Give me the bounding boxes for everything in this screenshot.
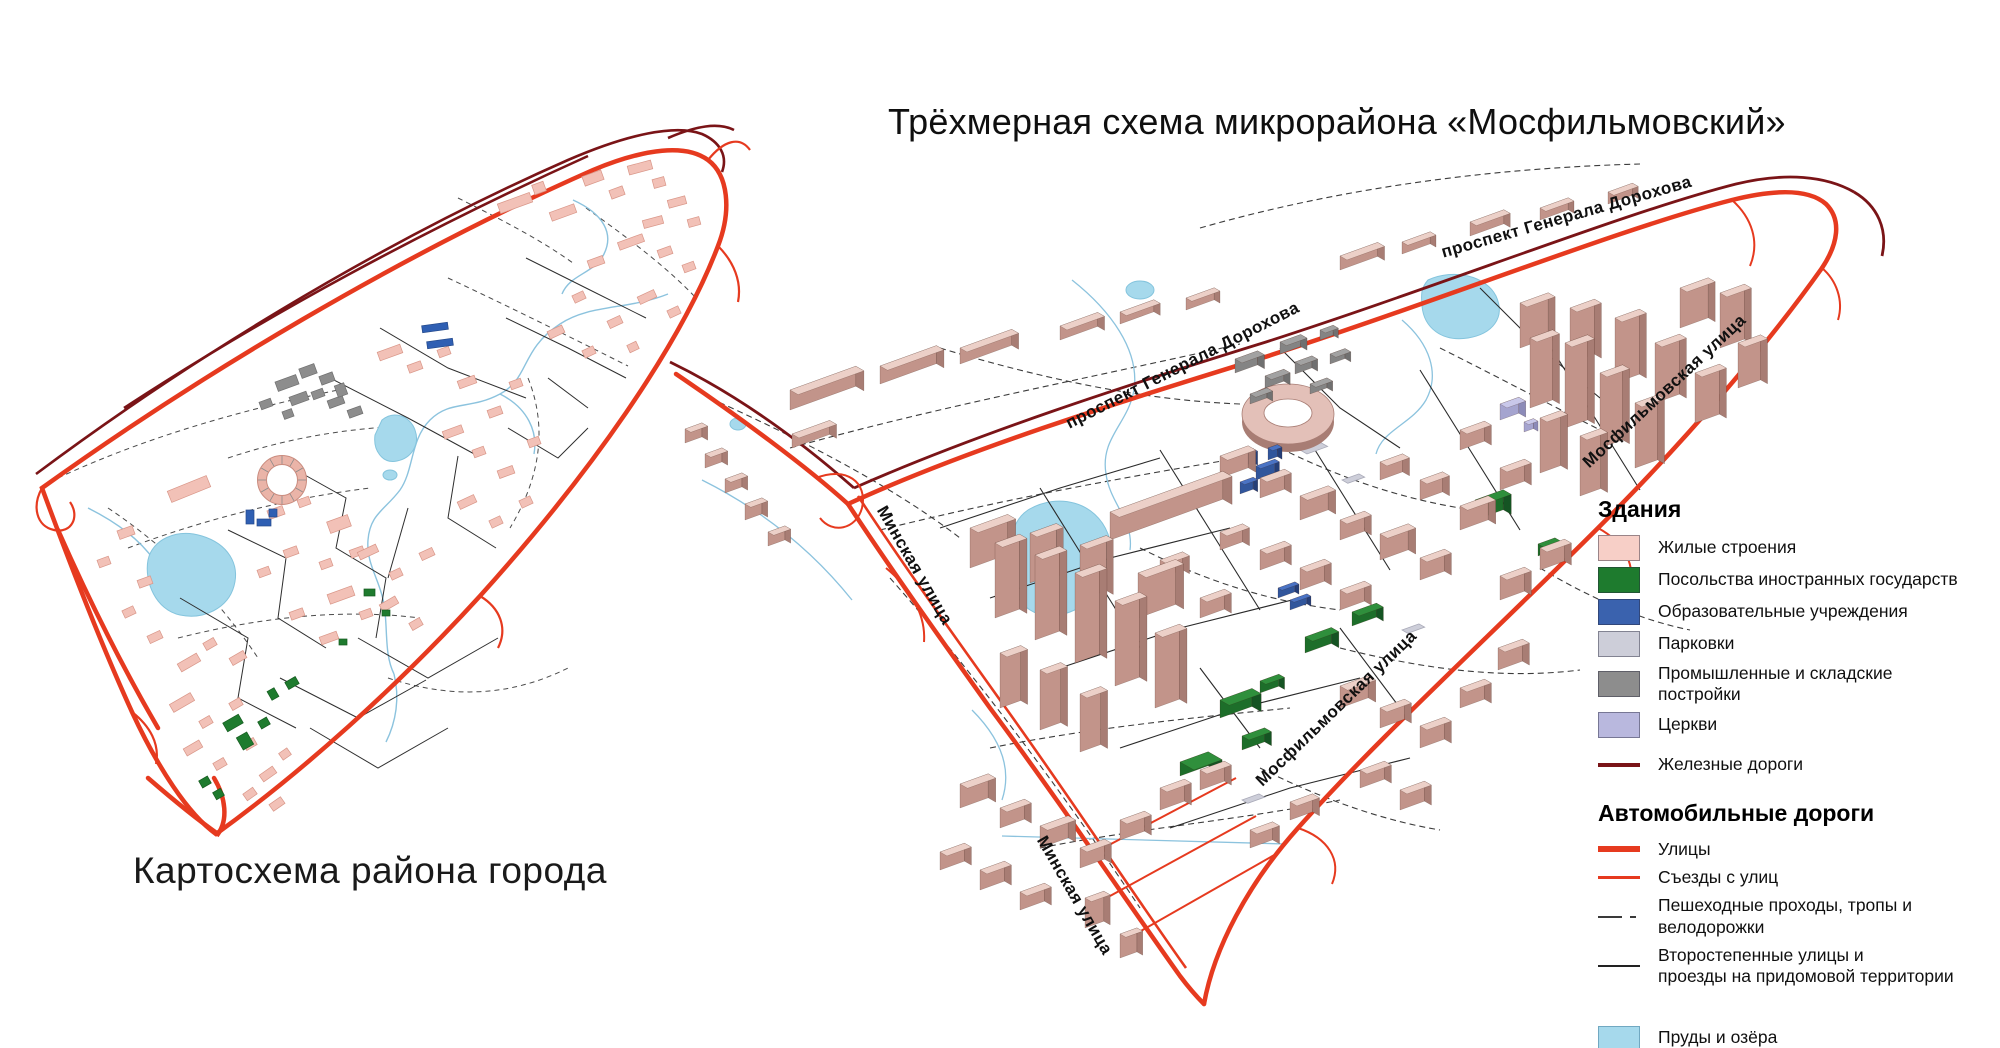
res-building-3d <box>1680 278 1715 328</box>
res-building-2d <box>289 608 305 620</box>
emb-building-2d <box>199 776 212 788</box>
res-building-2d <box>497 466 515 479</box>
res-building-2d <box>283 546 299 558</box>
res-building-3d <box>1000 799 1031 828</box>
legend-item-footpaths: Пешеходные проходы, тропы и велодорожки <box>1598 895 1978 938</box>
res-building-3d <box>1000 646 1028 708</box>
buildings-2d <box>97 160 701 811</box>
res-building-3d <box>1420 549 1451 580</box>
res-building-3d <box>1120 300 1160 324</box>
emb-building-3d <box>1260 674 1285 693</box>
streets-2d <box>42 150 726 834</box>
footpath-dash-swatch <box>1598 916 1640 918</box>
res-building-2d <box>243 787 257 800</box>
emb-building-2d <box>364 589 375 596</box>
parking-lot-3d <box>1242 794 1265 803</box>
res-building-2d <box>122 606 136 618</box>
emb-building-2d <box>223 714 244 732</box>
churches-swatch <box>1598 712 1640 738</box>
ind-building-2d <box>334 383 348 398</box>
legend-item-education: Образовательные учреждения <box>1598 599 1978 625</box>
res-building-3d <box>1565 335 1595 428</box>
residential-swatch <box>1598 535 1640 561</box>
edu-building-2d <box>269 509 277 517</box>
res-building-3d <box>1115 592 1147 686</box>
res-building-2d <box>549 204 577 221</box>
legend-buildings-header: Здания <box>1598 496 1978 523</box>
res-building-3d <box>1695 364 1726 423</box>
res-building-2d <box>487 406 503 418</box>
rivers-2d <box>88 200 668 742</box>
res-building-3d <box>705 448 728 468</box>
ind-building-3d <box>1235 351 1265 373</box>
ind-building-2d <box>282 409 294 420</box>
emb-building-3d <box>1352 603 1383 626</box>
ind-building-2d <box>319 372 335 385</box>
res-building-3d <box>940 843 971 870</box>
street-label: проспект Генерала Дорохова <box>1439 172 1694 262</box>
res-building-2d <box>199 716 213 729</box>
left-map-title: Картосхема района города <box>133 850 607 892</box>
res-building-3d <box>790 366 864 410</box>
res-building-2d <box>419 547 435 560</box>
ramp-line-swatch <box>1598 876 1640 879</box>
emb-building-2d <box>267 688 279 701</box>
res-building-3d <box>1220 524 1250 550</box>
res-building-2d <box>279 748 292 760</box>
res-building-3d <box>1380 524 1416 560</box>
res-building-2d <box>327 586 355 604</box>
res-building-3d <box>1040 663 1068 730</box>
res-building-3d <box>1420 717 1451 748</box>
res-building-2d <box>259 766 277 782</box>
res-building-3d <box>880 346 944 384</box>
res-building-3d <box>1035 546 1067 640</box>
res-building-2d <box>609 186 625 199</box>
ring-building-2d <box>258 456 307 505</box>
ind-building-2d <box>347 406 363 418</box>
res-building-2d <box>147 630 163 643</box>
res-building-2d <box>489 516 503 528</box>
chu-building-3d <box>1524 419 1538 432</box>
res-building-2d <box>572 291 586 303</box>
res-building-3d <box>1200 589 1231 618</box>
legend-item-secondary: Второстепенные улицы ипроезды на придомо… <box>1598 945 1978 988</box>
res-building-3d <box>1380 454 1410 480</box>
res-building-3d <box>1155 624 1187 708</box>
res-building-3d <box>1540 411 1568 473</box>
res-building-2d <box>319 558 333 570</box>
res-building-3d <box>1300 559 1331 590</box>
infographic-page: проспект Генерала Дороховапроспект Генер… <box>0 0 2000 1048</box>
res-building-2d <box>607 315 623 328</box>
res-building-3d <box>1340 242 1385 270</box>
res-building-2d <box>472 446 486 458</box>
emb-building-3d <box>1305 627 1339 653</box>
res-building-2d <box>457 495 477 510</box>
emb-building-2d <box>339 639 347 645</box>
ind-building-3d <box>1295 356 1318 374</box>
chu-building-3d <box>1500 397 1526 420</box>
res-building-3d <box>1530 330 1560 408</box>
emb-building-2d <box>382 610 390 616</box>
parking-lot-3d <box>1342 474 1365 483</box>
res-building-2d <box>587 256 605 269</box>
res-building-3d <box>1020 883 1051 910</box>
res-building-3d <box>960 329 1019 364</box>
legend-item-embassies: Посольства иностранных государств <box>1598 567 1978 593</box>
res-building-2d <box>327 515 352 534</box>
ind-building-3d <box>1310 378 1333 394</box>
ponds-swatch <box>1598 1026 1640 1048</box>
edu-building-2d <box>422 322 449 333</box>
res-building-3d <box>1300 486 1336 520</box>
ind-building-2d <box>289 391 309 406</box>
res-building-2d <box>97 556 111 568</box>
res-building-3d <box>1120 928 1143 958</box>
edu-building-3d <box>1290 594 1311 610</box>
res-building-3d <box>1402 232 1436 254</box>
legend-item-streets: Улицы <box>1598 839 1978 860</box>
res-building-3d <box>725 473 748 493</box>
edu-building-3d <box>1240 477 1258 494</box>
ind-building-2d <box>275 375 299 392</box>
res-building-3d <box>1340 511 1371 540</box>
res-building-3d <box>1420 472 1450 500</box>
edu-building-3d <box>1278 582 1299 598</box>
res-building-3d <box>1075 564 1107 663</box>
res-building-3d <box>1738 335 1768 388</box>
ind-building-2d <box>311 388 325 400</box>
res-building-3d <box>1460 421 1491 450</box>
res-building-2d <box>269 797 285 812</box>
res-building-2d <box>519 496 533 508</box>
res-building-2d <box>437 346 451 358</box>
res-building-2d <box>409 618 423 631</box>
res-building-2d <box>213 758 227 771</box>
res-building-3d <box>792 420 837 448</box>
res-building-2d <box>167 476 210 503</box>
res-building-2d <box>177 653 201 672</box>
emb-building-2d <box>258 717 271 729</box>
res-building-2d <box>183 740 203 756</box>
legend-item-ponds: Пруды и озёра <box>1598 1025 1978 1048</box>
res-building-3d <box>980 861 1011 890</box>
res-building-2d <box>203 638 217 651</box>
res-building-2d <box>257 566 271 578</box>
legend-item-industrial: Промышленные и складские постройки <box>1598 663 1978 706</box>
res-building-3d <box>1060 312 1105 340</box>
right-map-title: Трёхмерная схема микрорайона «Мосфильмов… <box>888 101 1786 143</box>
res-building-3d <box>960 774 996 808</box>
res-building-2d <box>407 361 423 373</box>
res-building-3d <box>1498 639 1529 670</box>
res-building-3d <box>1340 581 1371 610</box>
edu-building-2d <box>257 519 271 526</box>
parking-swatch <box>1598 631 1640 657</box>
res-building-2d <box>457 375 477 389</box>
ind-building-2d <box>259 398 273 410</box>
edu-building-2d <box>427 338 454 349</box>
legend: Здания Жилые строения Посольства иностра… <box>1598 496 1978 1048</box>
emb-building-3d <box>1220 688 1261 718</box>
res-building-3d <box>1400 781 1431 810</box>
res-building-2d <box>627 341 639 352</box>
res-building-3d <box>1460 496 1496 530</box>
street-line-swatch <box>1598 846 1640 852</box>
res-building-3d <box>685 423 708 443</box>
emb-building-2d <box>285 677 299 690</box>
secondary-line-swatch <box>1598 965 1640 967</box>
res-building-2d <box>377 344 403 361</box>
res-building-3d <box>1360 761 1391 788</box>
res-building-3d <box>1110 471 1232 540</box>
res-building-3d <box>995 534 1027 618</box>
edu-building-2d <box>246 510 254 524</box>
legend-item-parking: Парковки <box>1598 631 1978 657</box>
res-building-3d <box>1290 794 1320 820</box>
emb-building-3d <box>1242 728 1272 750</box>
res-building-2d <box>359 608 373 620</box>
res-building-3d <box>1160 779 1191 810</box>
res-building-2d <box>442 425 464 439</box>
res-building-2d <box>389 568 403 580</box>
railway-line-swatch <box>1598 763 1640 767</box>
legend-item-ramps: Съезды с улиц <box>1598 867 1978 888</box>
res-building-3d <box>1080 687 1108 752</box>
res-building-2d <box>509 378 523 390</box>
industrial-swatch <box>1598 671 1640 697</box>
ind-building-3d <box>1330 349 1351 364</box>
res-building-2d <box>319 631 339 645</box>
legend-item-churches: Церкви <box>1598 712 1978 738</box>
res-building-3d <box>1260 541 1291 570</box>
legend-item-railways: Железные дороги <box>1598 752 1978 778</box>
ind-building-2d <box>299 364 317 379</box>
res-building-3d <box>1120 811 1151 840</box>
res-building-3d <box>768 526 791 546</box>
embassies-swatch <box>1598 567 1640 593</box>
res-building-3d <box>1186 288 1220 310</box>
res-building-2d <box>169 693 194 713</box>
ind-building-2d <box>327 396 345 409</box>
education-swatch <box>1598 599 1640 625</box>
res-building-3d <box>1500 459 1531 490</box>
legend-item-residential: Жилые строения <box>1598 535 1978 561</box>
res-building-3d <box>1460 679 1491 708</box>
res-building-2d <box>582 346 596 358</box>
legend-roads-header: Автомобильные дороги <box>1598 800 1978 827</box>
